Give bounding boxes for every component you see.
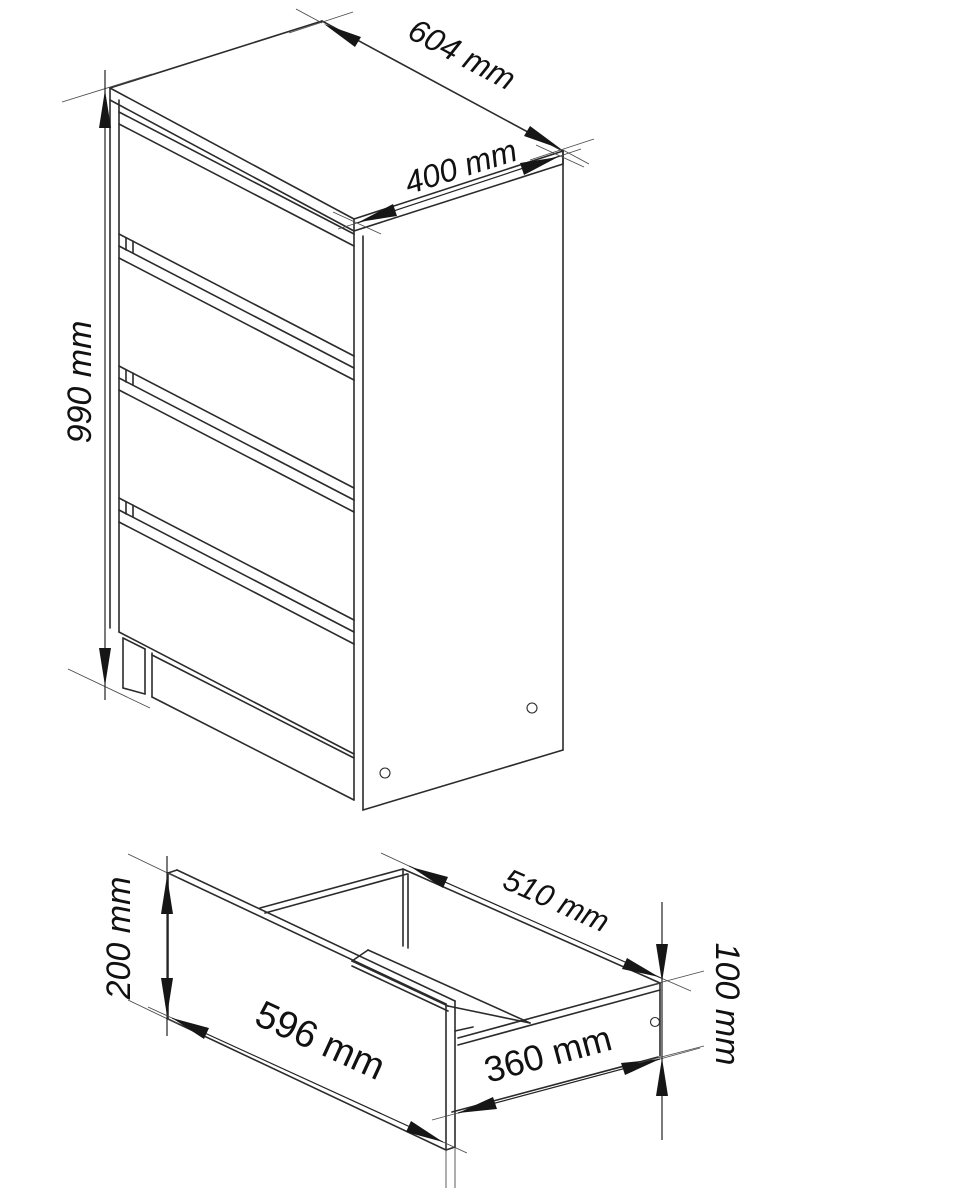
arrowhead [161,876,173,914]
dimension-label-height: 990 mm [61,321,99,444]
arrowhead [656,1058,668,1096]
dimension-dresser-depth: 400 mm [333,132,584,234]
dresser-drawer-fronts [119,112,354,754]
drawer-front-panel [168,870,455,1150]
arrowhead [411,867,448,888]
dimension-label-back-width: 510 mm [498,862,615,940]
dimension-drawer-side-height: 100 mm [638,902,746,1140]
dimension-drawer-back-width: 510 mm [381,853,691,991]
dimension-dresser-height: 990 mm [61,70,152,708]
dimension-label-front-height: 200 mm [100,877,138,1001]
drawing-canvas: 990 mm 604 mm 400 mm [0,0,963,1200]
dresser-side-screw-holes [380,703,537,778]
figure-dresser: 990 mm 604 mm 400 mm [61,9,594,810]
dimension-label-side-depth: 360 mm [480,1017,616,1090]
dimension-label-side-height: 100 mm [708,943,746,1066]
dimension-drawer-front-width: 596 mm [148,993,467,1188]
screw-hole-icon [380,768,390,778]
arrowhead [99,648,111,686]
screw-hole-icon [651,1018,660,1027]
figure-drawer: 200 mm 596 mm 510 mm [100,853,746,1188]
dimension-label-front-width: 596 mm [249,993,391,1088]
dresser-plinth-and-leg [123,638,354,800]
arrowhead [324,24,361,47]
dimension-label-depth: 400 mm [400,132,521,201]
arrowhead [406,1121,443,1142]
arrowhead [172,1018,209,1039]
screw-hole-icon [527,703,537,713]
arrowhead [458,1097,497,1113]
dimension-drawer-front-height: 200 mm [100,854,178,1036]
dimension-label-width: 604 mm [403,11,522,97]
technical-drawing: 990 mm 604 mm 400 mm [0,0,963,1200]
arrowhead [621,1059,660,1075]
arrowhead [524,126,561,149]
dimension-dresser-width: 604 mm [289,9,594,164]
arrowhead [161,978,173,1016]
